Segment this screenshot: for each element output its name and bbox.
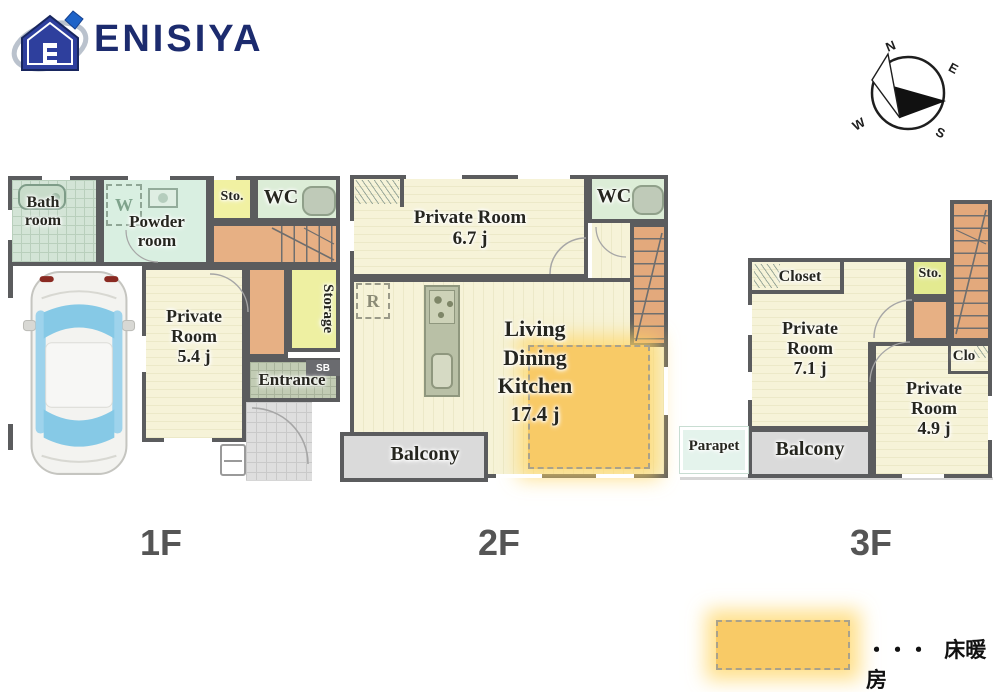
floor-label-2f: 2F <box>478 522 520 564</box>
room-label-ldk: Living Dining Kitchen 17.4 j <box>462 315 608 428</box>
room-size: 7.1 j <box>794 358 827 378</box>
toilet-icon-2f <box>632 185 664 215</box>
kitchen-counter <box>424 285 460 397</box>
brand-logo-house-icon <box>10 8 90 76</box>
svg-text:W: W <box>850 114 869 133</box>
stairs-1f <box>270 226 336 262</box>
brand-name: ENISIYA <box>94 18 264 61</box>
room-label: Storage <box>292 272 336 346</box>
window <box>664 367 668 415</box>
window <box>42 176 70 180</box>
legend-text: ・・・ 床暖房 <box>866 634 1000 692</box>
legend-dots: ・・・ <box>866 638 929 662</box>
room-label: Private Room 6.7 j <box>390 207 550 250</box>
ldk-size: 17.4 j <box>462 401 608 428</box>
kitchen-sink-icon <box>431 353 453 389</box>
window <box>596 474 634 478</box>
unit-detail <box>224 460 242 474</box>
compass-icon: N E W S <box>848 36 968 142</box>
stove-icon <box>429 290 455 324</box>
room-name: Private Room <box>414 207 526 228</box>
room-size: 5.4 j <box>178 346 211 366</box>
stairs-3f <box>950 200 992 342</box>
room-label: Sto. <box>211 189 253 205</box>
room-label: Sto. <box>911 266 949 282</box>
window <box>748 372 752 400</box>
wall-segment <box>400 179 404 207</box>
window <box>128 176 170 180</box>
landing-3f <box>910 298 950 342</box>
room-name: Private Room <box>906 378 962 418</box>
room-name: Private Room <box>166 306 222 346</box>
room-size: 6.7 j <box>453 228 488 249</box>
floorplan-3f: Closet Sto. Private Room 7.1 j Clo Priva… <box>680 200 995 484</box>
window <box>214 176 236 180</box>
room-label: Bath room <box>12 194 74 230</box>
sink-bowl <box>158 193 168 203</box>
window <box>164 438 212 442</box>
wall-segment <box>8 264 13 298</box>
room-label: Entrance <box>248 370 336 389</box>
floor-label-3f: 3F <box>850 522 892 564</box>
stairs-2f <box>630 223 668 347</box>
window <box>350 221 354 251</box>
ldk-line: Living <box>462 315 608 344</box>
room-label: Clo <box>944 348 984 365</box>
room-label: Balcony <box>370 443 480 465</box>
window <box>748 305 752 335</box>
corridor-2f <box>592 223 630 281</box>
ldk-line: Kitchen <box>462 372 608 401</box>
room-name: Private Room <box>782 318 838 358</box>
room-label: Parapet <box>682 438 746 455</box>
room-label: Private Room 7.1 j <box>766 318 854 378</box>
floorplan-sheet: ENISIYA N E W S SB <box>0 0 1000 692</box>
room-label: Powder room <box>112 212 202 250</box>
room-label: WC <box>592 185 636 207</box>
floorplan-2f: R Private Room 6.7 j WC Living Dining Ki… <box>350 175 668 483</box>
fridge-label: R <box>367 291 380 312</box>
window <box>518 175 570 179</box>
floor-label-1f: 1F <box>140 522 182 564</box>
window <box>988 396 992 440</box>
refrigerator-box: R <box>356 283 390 319</box>
legend-floor-heating-swatch <box>716 620 850 670</box>
sink-icon <box>148 188 178 208</box>
svg-text:E: E <box>946 60 961 77</box>
room-label: Closet <box>760 268 840 286</box>
closet-hatch <box>355 180 399 204</box>
car-image <box>22 268 136 480</box>
ldk-line: Dining <box>462 344 608 373</box>
toilet-icon-1f <box>302 186 336 216</box>
svg-text:S: S <box>933 124 947 141</box>
window <box>406 175 462 179</box>
svg-text:N: N <box>883 37 897 54</box>
window <box>496 474 542 478</box>
wall-segment <box>8 424 13 450</box>
floorplan-1f: SB W Bath room Powder room Sto. WC Stora… <box>8 176 348 482</box>
room-label: WC <box>258 186 304 208</box>
room-label: Balcony <box>756 438 864 460</box>
hallway-1f <box>246 266 288 358</box>
window <box>142 336 146 372</box>
room-label: Private Room 4.9 j <box>888 378 980 438</box>
entrance-porch <box>246 402 312 480</box>
window <box>902 474 944 478</box>
room-size: 4.9 j <box>918 418 951 438</box>
water-heater-unit <box>220 444 246 476</box>
room-label: Private Room 5.4 j <box>150 306 238 366</box>
